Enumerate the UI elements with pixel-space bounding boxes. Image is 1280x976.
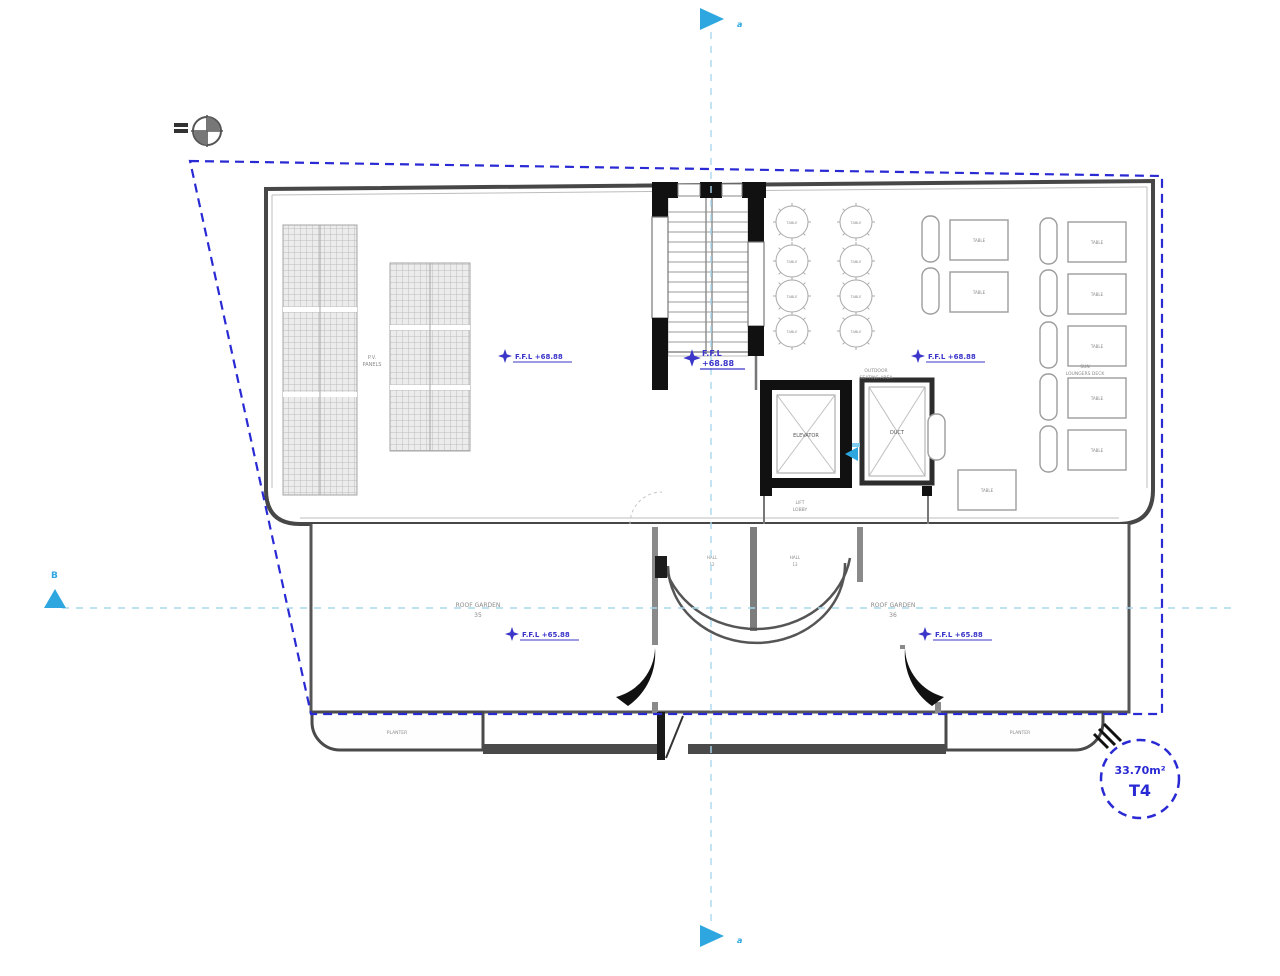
lobby-label-line1: LIFT [795,500,804,506]
pv-label-line1: P.V. [368,355,377,361]
section-arrow-top [700,8,724,30]
exit-door [657,712,683,760]
building-lower-block [311,492,1129,713]
parapet-and-planters: PLANTER PLANTER [312,712,1121,760]
room-left-number: 35 [474,612,482,619]
section-arrow-bottom [700,925,724,947]
area-badge: 33.70m² T4 [1101,740,1179,818]
duct-label: DUCT [890,430,905,436]
room-right-number: 36 [889,612,897,619]
north-compass-icon [174,115,223,147]
floor-plan-svg: TABLE TABLE [0,0,1280,976]
pv-panel-left [283,225,357,495]
sun-loungers [1040,218,1126,472]
hall-right-line2: 13 [792,562,798,567]
section-marker-bottom-label: a [737,936,742,945]
elevator-label: ELEVATOR [793,433,819,439]
section-marker-top-label: a [737,20,742,29]
hall-right-line1: HALL [790,555,801,560]
wall-right-partition-stub [935,702,941,713]
level-roof-right-text: F.F.L +68.88 [928,353,976,361]
parapet-left-segment [483,744,657,754]
lobby-label-line2: LOBBY [793,507,808,513]
planter-left-label: PLANTER [387,730,408,736]
section-marker-bottom: a [700,925,742,947]
hall-left-line2: 12 [709,562,715,567]
deck-label-line2: LOUNGERS DECK [1066,371,1106,377]
wall-right-door-jamb [900,645,905,649]
wall-right-partition [857,527,863,582]
level-terrace-left-text: F.F.L +65.88 [522,631,570,639]
room-left-name: ROOF GARDEN [456,602,501,609]
level-roof-left-text: F.F.L +68.88 [515,353,563,361]
section-marker-left: B [44,571,66,608]
parapet-right-segment [688,744,946,754]
badge-type-text: T4 [1129,781,1151,800]
floor-plan-canvas: TABLE TABLE [0,0,1280,976]
section-arrow-left [44,589,66,608]
level-stair-line1: F.F.L [702,349,722,358]
section-marker-top: a [700,8,742,30]
pv-label-line2: PANELS [363,362,382,368]
pv-panel-right [390,263,470,451]
seating-label-line2: SEATING AREA [860,375,894,381]
hall-left-line1: HALL [707,555,718,560]
section-marker-left-label: B [51,571,58,581]
wall-center-divider [750,527,757,631]
seating-label-line1: OUTDOOR [864,368,887,374]
planter-right-label: PLANTER [1010,730,1031,736]
wall-left-partition [652,527,658,645]
elevator-shaft: ELEVATOR [760,380,852,488]
level-terrace-right-text: F.F.L +65.88 [935,631,983,639]
wall-left-partition-stub [652,702,658,713]
level-stair-line2: +68.88 [702,359,734,368]
service-shaft: DUCT [862,380,932,483]
badge-area-text: 33.70m² [1114,764,1165,777]
deck-label-line1: SUN [1080,364,1090,370]
